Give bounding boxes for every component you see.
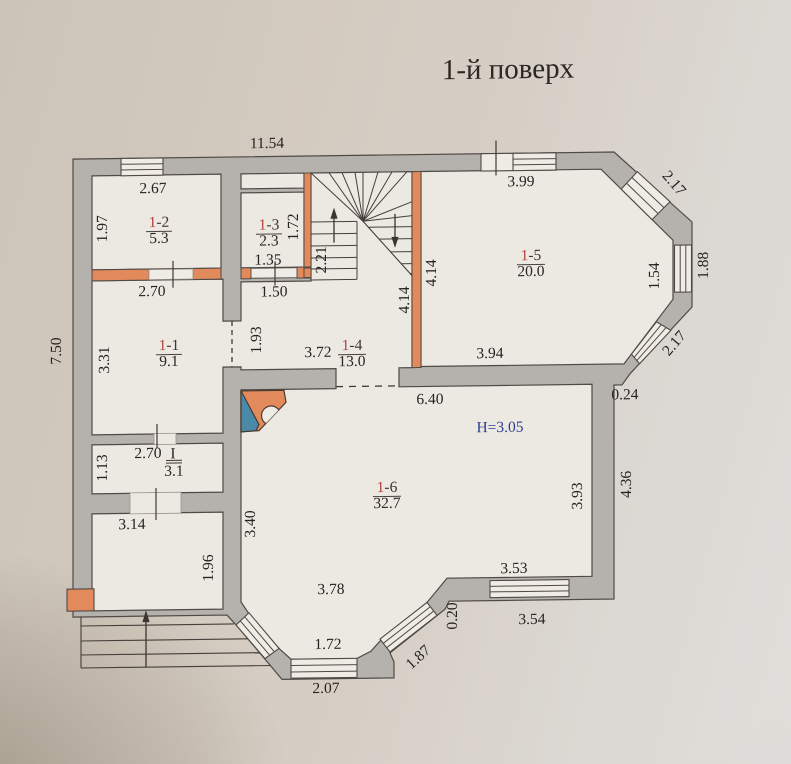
svg-text:1.54: 1.54 [646, 262, 663, 290]
svg-text:1.72: 1.72 [314, 636, 341, 653]
svg-text:1-й поверх: 1-й поверх [442, 53, 575, 87]
svg-text:3.31: 3.31 [96, 346, 113, 373]
svg-text:4.36: 4.36 [618, 470, 635, 498]
svg-text:6.40: 6.40 [416, 391, 443, 408]
svg-text:2.07: 2.07 [312, 680, 339, 697]
svg-text:0.20: 0.20 [444, 602, 461, 630]
svg-text:7.50: 7.50 [48, 337, 65, 365]
svg-text:4.14: 4.14 [423, 259, 440, 287]
svg-text:1-6: 1-6 [377, 479, 398, 496]
svg-text:1.96: 1.96 [200, 554, 217, 582]
svg-text:3.78: 3.78 [317, 581, 344, 598]
svg-text:3.40: 3.40 [242, 510, 259, 538]
svg-text:2.3: 2.3 [259, 232, 279, 249]
svg-text:5.3: 5.3 [149, 230, 169, 247]
svg-text:3.72: 3.72 [304, 344, 331, 361]
svg-text:3.1: 3.1 [164, 463, 183, 480]
svg-text:1.88: 1.88 [695, 251, 712, 279]
svg-text:І: І [170, 445, 175, 462]
svg-text:13.0: 13.0 [338, 353, 365, 370]
svg-text:1.72: 1.72 [285, 213, 302, 240]
svg-text:1-2: 1-2 [149, 214, 170, 231]
svg-text:1.13: 1.13 [94, 454, 111, 482]
svg-text:3.53: 3.53 [500, 560, 527, 577]
svg-text:32.7: 32.7 [373, 495, 400, 512]
svg-text:3.99: 3.99 [507, 173, 534, 190]
svg-text:H=3.05: H=3.05 [476, 419, 523, 437]
svg-text:2.70: 2.70 [134, 445, 161, 462]
svg-text:3.54: 3.54 [518, 611, 545, 628]
svg-text:3.94: 3.94 [476, 345, 503, 362]
svg-text:2.67: 2.67 [139, 180, 166, 197]
svg-text:1.87: 1.87 [403, 642, 435, 673]
svg-text:2.21: 2.21 [313, 246, 330, 273]
svg-text:0.24: 0.24 [611, 386, 638, 403]
svg-text:3.14: 3.14 [118, 516, 145, 533]
svg-text:1.35: 1.35 [254, 251, 281, 268]
svg-text:20.0: 20.0 [517, 263, 544, 280]
svg-text:9.1: 9.1 [159, 353, 178, 370]
svg-text:4.14: 4.14 [396, 286, 413, 314]
svg-text:2.17: 2.17 [659, 167, 690, 199]
svg-text:11.54: 11.54 [250, 135, 285, 152]
svg-text:1.50: 1.50 [260, 283, 287, 300]
svg-text:1-4: 1-4 [342, 337, 363, 354]
svg-text:2.70: 2.70 [138, 283, 165, 300]
svg-text:3.93: 3.93 [569, 482, 586, 510]
svg-text:1.93: 1.93 [248, 326, 265, 354]
svg-text:1-1: 1-1 [159, 337, 180, 354]
svg-text:1-3: 1-3 [259, 216, 280, 233]
svg-text:1-5: 1-5 [521, 247, 542, 264]
svg-text:1.97: 1.97 [94, 215, 111, 243]
